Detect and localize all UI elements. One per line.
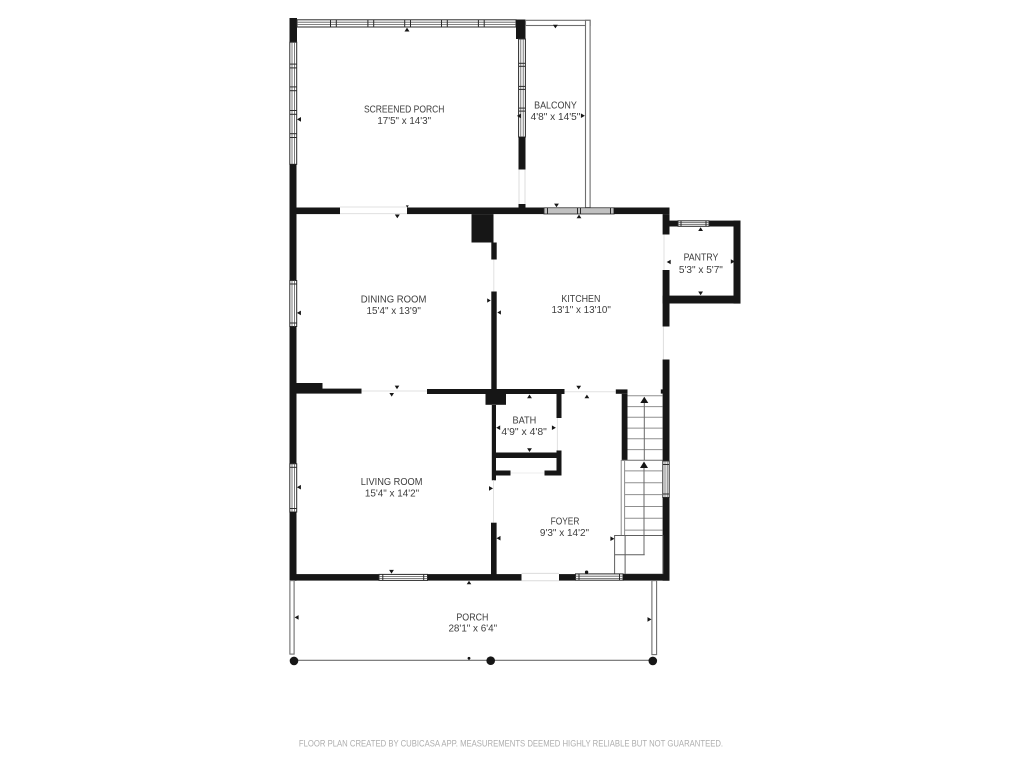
svg-text:FOYER: FOYER bbox=[551, 516, 580, 527]
svg-text:17'5" x 14'3": 17'5" x 14'3" bbox=[377, 116, 431, 127]
svg-text:LIVING ROOM: LIVING ROOM bbox=[361, 477, 423, 488]
svg-text:PANTRY: PANTRY bbox=[684, 253, 719, 264]
svg-text:SCREENED PORCH: SCREENED PORCH bbox=[364, 104, 445, 115]
svg-text:15'4" x 14'2": 15'4" x 14'2" bbox=[365, 488, 420, 499]
svg-text:BALCONY: BALCONY bbox=[534, 100, 577, 111]
svg-text:15'4" x 13'9": 15'4" x 13'9" bbox=[367, 306, 422, 317]
svg-text:5'3" x 5'7": 5'3" x 5'7" bbox=[679, 265, 723, 276]
svg-text:PORCH: PORCH bbox=[456, 613, 488, 624]
svg-text:FLOOR PLAN CREATED BY CUBICASA: FLOOR PLAN CREATED BY CUBICASA APP. MEAS… bbox=[299, 739, 723, 749]
svg-text:4'9" x 4'8": 4'9" x 4'8" bbox=[501, 427, 547, 438]
svg-text:DINING ROOM: DINING ROOM bbox=[361, 294, 427, 305]
svg-text:28'1" x 6'4": 28'1" x 6'4" bbox=[448, 624, 497, 635]
svg-text:KITCHEN: KITCHEN bbox=[561, 294, 600, 305]
svg-text:9'3" x 14'2": 9'3" x 14'2" bbox=[540, 528, 590, 539]
svg-text:13'1" x 13'10": 13'1" x 13'10" bbox=[552, 305, 612, 316]
svg-text:BATH: BATH bbox=[513, 415, 537, 426]
svg-text:4'8" x 14'5": 4'8" x 14'5" bbox=[531, 112, 581, 123]
